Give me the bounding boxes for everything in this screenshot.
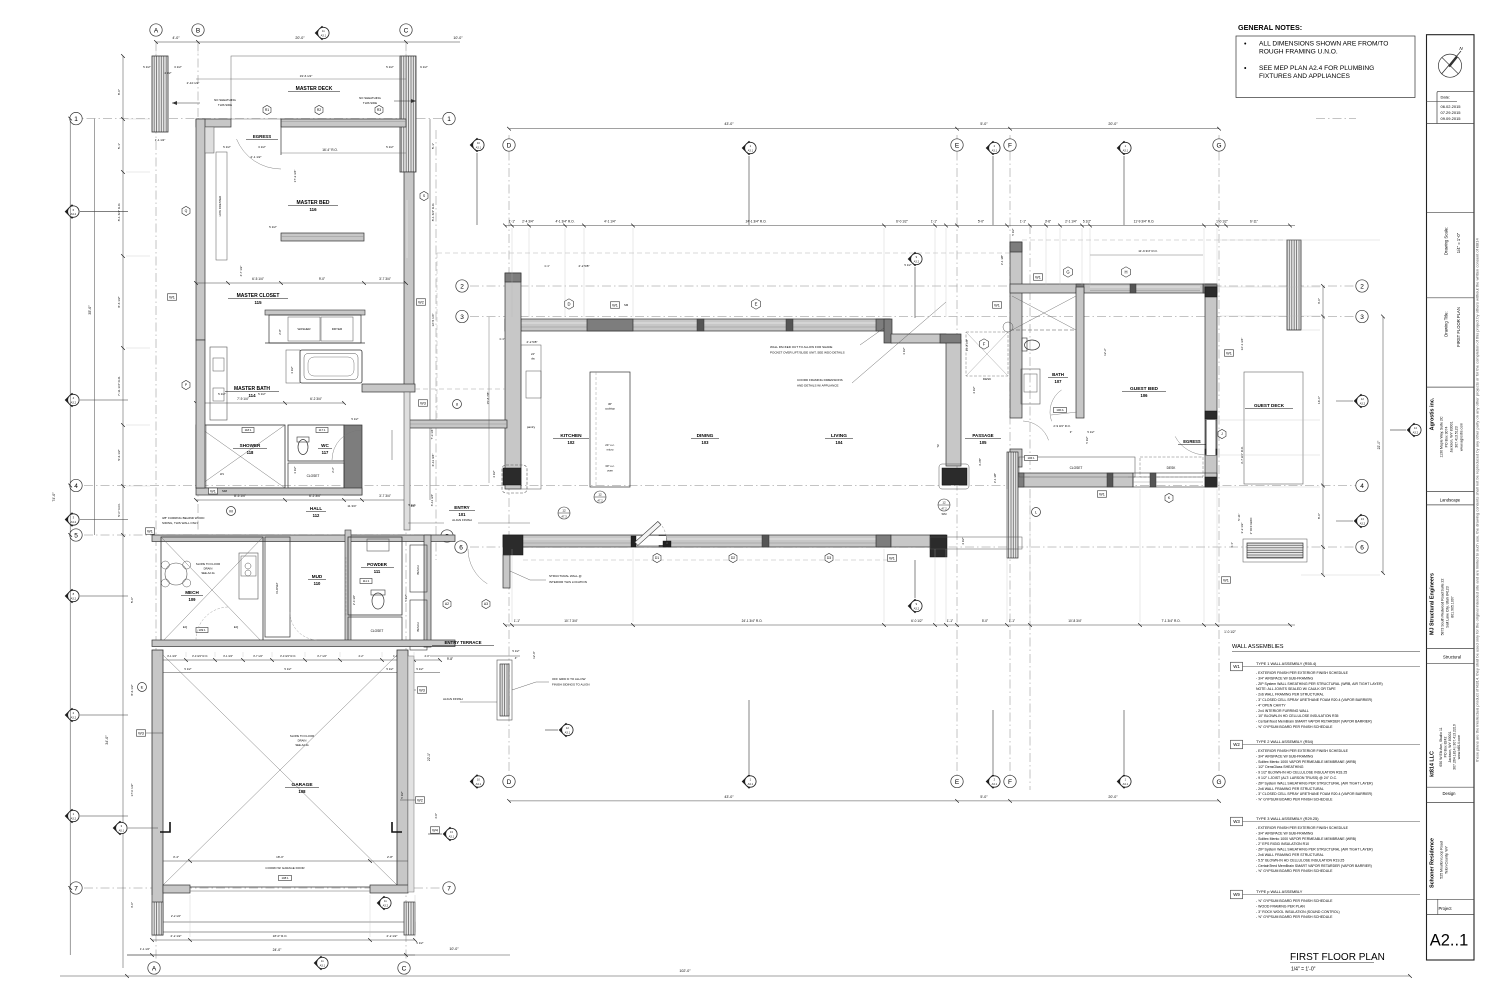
svg-text:5'-11": 5'-11" xyxy=(1237,513,1241,520)
svg-text:A3.1: A3.1 xyxy=(476,146,482,150)
svg-text:3'-4": 3'-4" xyxy=(173,855,179,859)
svg-text:07.29.2015: 07.29.2015 xyxy=(1441,110,1462,115)
svg-text:A: A xyxy=(154,27,159,34)
svg-text:SIDING, THIS WALL ONLY: SIDING, THIS WALL ONLY xyxy=(162,521,198,525)
svg-text:5: 5 xyxy=(74,532,78,539)
svg-text:Jackson, WY 83001: Jackson, WY 83001 xyxy=(1450,421,1454,452)
svg-text:A3.1: A3.1 xyxy=(565,731,571,735)
svg-text:118:1: 118:1 xyxy=(245,428,252,432)
svg-text:13: 13 xyxy=(1361,517,1364,521)
svg-text:12'-1 3/4": 12'-1 3/4" xyxy=(1240,338,1244,351)
svg-text:1: 1 xyxy=(74,116,78,123)
svg-text:6: 6 xyxy=(1360,544,1364,551)
svg-text:3'-2 1/2": 3'-2 1/2" xyxy=(1240,523,1244,534)
svg-text:5873 South Redwood Road Suite: 5873 South Redwood Road Suite 22 xyxy=(1441,579,1445,636)
svg-text:Project: Project xyxy=(1438,906,1452,911)
svg-text:A7.2: A7.2 xyxy=(597,499,603,503)
svg-text:18'-0" R.O.: 18'-0" R.O. xyxy=(273,934,288,938)
svg-text:A3.1: A3.1 xyxy=(748,149,754,153)
svg-text:cooktop: cooktop xyxy=(605,407,615,411)
svg-text:5 1/2": 5 1/2" xyxy=(416,941,423,945)
svg-text:GENERAL NOTES:: GENERAL NOTES: xyxy=(1238,23,1302,32)
svg-text:FIRST FLOOR PLAN: FIRST FLOOR PLAN xyxy=(1456,307,1461,347)
svg-text:2'-2 1/2": 2'-2 1/2" xyxy=(171,914,181,918)
svg-text:4'-0": 4'-0" xyxy=(172,36,180,40)
svg-text:3: 3 xyxy=(460,314,464,321)
svg-text:3'-7 1/2": 3'-7 1/2" xyxy=(317,654,327,658)
svg-text:9 1/2": 9 1/2" xyxy=(420,65,428,69)
svg-text:Drawing Title:: Drawing Title: xyxy=(1443,311,1448,336)
svg-text:3 1/2": 3 1/2" xyxy=(290,366,294,373)
svg-text:106: 106 xyxy=(1141,393,1149,398)
svg-text:Teton County, WY: Teton County, WY xyxy=(1445,845,1449,874)
svg-text:43'-0": 43'-0" xyxy=(724,122,734,126)
svg-text:GUEST BED: GUEST BED xyxy=(1130,386,1159,392)
svg-text:INTERIOR THIS LOCATION: INTERIOR THIS LOCATION xyxy=(549,580,587,584)
svg-text:R3: R3 xyxy=(377,108,381,112)
svg-text:R2: R2 xyxy=(317,108,321,112)
svg-text:5'-1": 5'-1" xyxy=(431,143,435,149)
svg-text:- 3/4" AIRSPACE W/ SUB-FRAMING: - 3/4" AIRSPACE W/ SUB-FRAMING xyxy=(1256,831,1313,835)
svg-text:3: 3 xyxy=(1360,314,1364,321)
svg-text:G: G xyxy=(1216,142,1221,149)
svg-text:W2: W2 xyxy=(1233,742,1240,747)
svg-text:8'-0": 8'-0" xyxy=(117,89,121,95)
svg-text:5'-1": 5'-1" xyxy=(117,143,121,149)
svg-text:DINING: DINING xyxy=(697,433,714,439)
svg-text:1/4" = 1'-0": 1/4" = 1'-0" xyxy=(1291,967,1316,973)
svg-text:106:1: 106:1 xyxy=(1028,456,1035,460)
svg-text:W1: W1 xyxy=(889,556,895,560)
svg-text:1'-1": 1'-1" xyxy=(947,619,953,623)
svg-text:307.413.5123: 307.413.5123 xyxy=(1455,426,1459,447)
svg-text:3'-0": 3'-0" xyxy=(1317,298,1321,304)
svg-text:5 1/2": 5 1/2" xyxy=(218,392,226,396)
svg-text:W3: W3 xyxy=(138,731,144,735)
svg-text:30" u.c.: 30" u.c. xyxy=(605,464,615,468)
svg-text:PASSAGE: PASSAGE xyxy=(972,433,993,438)
svg-text:2'-2": 2'-2" xyxy=(331,467,335,473)
svg-text:J: J xyxy=(1221,432,1223,436)
svg-text:A3.1: A3.1 xyxy=(320,964,326,968)
svg-text:WASHER: WASHER xyxy=(297,327,311,331)
svg-text:15'-8 7/8": 15'-8 7/8" xyxy=(965,339,969,351)
svg-text:W1: W1 xyxy=(147,529,153,533)
svg-text:WALL PACKED OUT TO ALLOW FOR S: WALL PACKED OUT TO ALLOW FOR SHADE xyxy=(770,345,832,349)
svg-text:17'-0 1/2": 17'-0 1/2" xyxy=(130,783,134,796)
svg-text:106:A: 106:A xyxy=(1056,408,1063,412)
svg-text:CLOSET: CLOSET xyxy=(371,629,384,633)
svg-text:A3.1: A3.1 xyxy=(321,34,327,38)
svg-text:Structural: Structural xyxy=(1443,655,1461,660)
svg-text:2'-8": 2'-8" xyxy=(387,855,393,859)
svg-text:12'-5 1/4": 12'-5 1/4" xyxy=(431,313,435,326)
svg-text:W1: W1 xyxy=(994,303,1000,307)
svg-text:H: H xyxy=(1124,270,1127,275)
svg-text:8: 8 xyxy=(456,402,458,406)
svg-text:5 1/2": 5 1/2" xyxy=(416,667,423,671)
svg-text:12'-0": 12'-0" xyxy=(532,651,536,659)
svg-text:oven: oven xyxy=(607,469,614,473)
svg-text:F: F xyxy=(1008,779,1012,786)
svg-text:ENTRY TERRACE: ENTRY TERRACE xyxy=(444,640,481,645)
svg-text:3": 3" xyxy=(1070,430,1072,434)
svg-text:8'-6 1/2": 8'-6 1/2" xyxy=(130,684,134,695)
svg-text:- 9 1/2" I-JOIST (ALT: LARSON: - 9 1/2" I-JOIST (ALT: LARSON TRUSS) @ 2… xyxy=(1256,776,1337,780)
svg-text:6'-11": 6'-11" xyxy=(1250,220,1258,224)
svg-text:10: 10 xyxy=(477,778,480,782)
svg-text:D: D xyxy=(507,779,512,786)
svg-text:12: 12 xyxy=(1361,397,1364,401)
svg-text:- 3/4" AIRSPACE W/ SUB-FRAMING: - 3/4" AIRSPACE W/ SUB-FRAMING xyxy=(1256,676,1313,680)
svg-text:3'-7 3/4": 3'-7 3/4" xyxy=(379,277,391,281)
svg-text:102: 102 xyxy=(568,440,576,445)
svg-text:A7.3: A7.3 xyxy=(561,515,567,519)
svg-text:MASTER BED: MASTER BED xyxy=(296,200,329,206)
svg-text:W9: W9 xyxy=(1233,892,1240,897)
svg-text:MJ Structural Engineers: MJ Structural Engineers xyxy=(1430,573,1436,635)
svg-text:115: 115 xyxy=(254,300,262,305)
svg-text:Salt Lake City, Utah 84123: Salt Lake City, Utah 84123 xyxy=(1446,586,1450,627)
svg-text:D2: D2 xyxy=(731,556,735,560)
svg-text:5 1/2": 5 1/2" xyxy=(386,145,394,149)
svg-text:8'-3 1/2": 8'-3 1/2" xyxy=(117,296,121,307)
svg-text:- 3" CLOSED CELL SPRAY URETHAN: - 3" CLOSED CELL SPRAY URETHANE FOAM R20… xyxy=(1256,792,1372,796)
svg-text:LIVING: LIVING xyxy=(831,433,847,439)
svg-text:7'-9 1/4": 7'-9 1/4" xyxy=(237,397,249,401)
svg-text:W1: W1 xyxy=(1223,578,1229,582)
svg-text:3'-7 3/4": 3'-7 3/4" xyxy=(379,494,391,498)
svg-text:3'-7 1/2": 3'-7 1/2" xyxy=(253,654,263,658)
svg-text:WALL ASSEMBLIES: WALL ASSEMBLIES xyxy=(1232,644,1284,650)
svg-text:PO Box 8242: PO Box 8242 xyxy=(1444,737,1448,758)
svg-text:A3.2: A3.2 xyxy=(914,607,920,611)
svg-text:6'-0 1/2": 6'-0 1/2" xyxy=(911,619,923,623)
svg-text:STRUCTURAL WALL @: STRUCTURAL WALL @ xyxy=(549,574,582,578)
svg-text:650 W Elk Ave, Studio 11: 650 W Elk Ave, Studio 11 xyxy=(1439,727,1443,766)
svg-text:Landscape: Landscape xyxy=(1440,498,1461,503)
svg-text:Date:: Date: xyxy=(1441,94,1451,99)
svg-text:3'-1 1/8": 3'-1 1/8" xyxy=(993,473,997,483)
svg-text:2'-2 5/8": 2'-2 5/8" xyxy=(527,340,538,344)
svg-text:3'-1 1/8": 3'-1 1/8" xyxy=(1000,255,1004,265)
svg-text:1/4" = 1'-0": 1/4" = 1'-0" xyxy=(1456,232,1461,253)
svg-text:dw: dw xyxy=(531,357,534,361)
svg-text:102'-0": 102'-0" xyxy=(679,969,691,973)
svg-text:06.02.2015: 06.02.2015 xyxy=(1441,104,1462,109)
svg-text:W1: W1 xyxy=(1099,492,1105,496)
svg-text:COORD FRAMING DIMENSIONS: COORD FRAMING DIMENSIONS xyxy=(797,378,843,382)
svg-text:www.agrostis.com: www.agrostis.com xyxy=(1460,423,1464,451)
svg-text:5 1/2": 5 1/2" xyxy=(351,417,358,421)
svg-text:E: E xyxy=(955,779,960,786)
svg-text:A3.1: A3.1 xyxy=(992,782,998,786)
svg-text:W3: W3 xyxy=(1233,819,1240,824)
svg-text:6'-2 3/4": 6'-2 3/4" xyxy=(310,397,322,401)
svg-text:POCKET OVER LIFT/SLIDE UNIT, S: POCKET OVER LIFT/SLIDE UNIT, SEE WDO DET… xyxy=(770,351,845,355)
svg-text:C: C xyxy=(404,27,409,34)
svg-text:- 3" ROCK WOOL INSULATION (SOU: - 3" ROCK WOOL INSULATION (SOUND CONTROL… xyxy=(1256,910,1340,914)
svg-text:M: M xyxy=(229,508,232,513)
svg-text:- 2x6 WALL FRAMING PER STRUCTU: - 2x6 WALL FRAMING PER STRUCTURAL xyxy=(1256,787,1324,791)
svg-text:5 1/2": 5 1/2" xyxy=(904,263,911,267)
svg-text:CLOSET: CLOSET xyxy=(1070,466,1083,470)
svg-text:1'-1": 1'-1" xyxy=(499,337,505,341)
svg-text:1'-1": 1'-1" xyxy=(544,264,550,268)
svg-text:6'-11 3/4": 6'-11 3/4" xyxy=(430,494,434,506)
svg-text:111: 111 xyxy=(374,569,381,574)
svg-text:- ZIP System WALL SHEATHING PE: - ZIP System WALL SHEATHING PER STRUCTUR… xyxy=(1256,682,1383,686)
svg-text:CLOSET: CLOSET xyxy=(275,582,279,593)
svg-text:2'-1 1/2": 2'-1 1/2" xyxy=(251,155,262,159)
svg-text:ALL DIMENSIONS SHOWN ARE FROM/: ALL DIMENSIONS SHOWN ARE FROM/TO xyxy=(1259,41,1388,48)
svg-text:SEE A2.0s: SEE A2.0s xyxy=(201,571,215,575)
svg-text:GARAGE: GARAGE xyxy=(291,782,313,788)
svg-text:A2..1: A2..1 xyxy=(1430,932,1469,950)
svg-text:15'-8 7/8": 15'-8 7/8" xyxy=(486,392,490,405)
svg-text:- ⅝" GYPSUM BOARD PER FINISH S: - ⅝" GYPSUM BOARD PER FINISH SCHEDULE xyxy=(1256,899,1333,903)
svg-text:- ZIP System WALL SHEATHING PE: - ZIP System WALL SHEATHING PER STRUCTUR… xyxy=(1256,781,1373,785)
svg-text:4'-0": 4'-0" xyxy=(424,654,429,658)
svg-text:- EXTERIOR FINISH PER EXTERIOR: - EXTERIOR FINISH PER EXTERIOR FINISH SC… xyxy=(1256,826,1349,830)
svg-text:2: 2 xyxy=(1360,283,1364,290)
svg-text:BENCH: BENCH xyxy=(416,565,420,574)
svg-text:109:1: 109:1 xyxy=(199,628,206,632)
svg-text:W1: W1 xyxy=(220,472,224,476)
svg-text:WC: WC xyxy=(321,443,329,448)
svg-text:A3.2: A3.2 xyxy=(1360,402,1366,406)
svg-text:4'-0": 4'-0" xyxy=(434,813,438,819)
svg-text:A3.2: A3.2 xyxy=(71,716,77,720)
svg-text:117: 117 xyxy=(322,450,329,455)
svg-text:6'-0 1/2": 6'-0 1/2" xyxy=(896,220,908,224)
svg-text:4 1/2": 4 1/2" xyxy=(164,71,171,75)
svg-text:1'-1": 1'-1" xyxy=(514,619,520,623)
svg-text:5'-0": 5'-0" xyxy=(978,220,984,224)
svg-text:7'-11 1/4" R.O.: 7'-11 1/4" R.O. xyxy=(117,376,121,396)
svg-text:801.905.1097: 801.905.1097 xyxy=(1451,596,1455,617)
svg-text:35'-0": 35'-0" xyxy=(88,305,92,315)
svg-text:7'-3 1/4": 7'-3 1/4" xyxy=(430,429,434,440)
svg-text:TYPE 3 WALL ASSEMBLY (R29.25): TYPE 3 WALL ASSEMBLY (R29.25) xyxy=(1256,816,1319,821)
svg-text:EQ: EQ xyxy=(234,625,239,629)
svg-text:E: E xyxy=(141,684,144,689)
svg-text:SEE MEP PLAN A2.4 FOR PLUMBING: SEE MEP PLAN A2.4 FOR PLUMBING xyxy=(1259,65,1374,72)
svg-text:24": 24" xyxy=(531,352,535,356)
svg-text:11'-9 3/4" R.O.: 11'-9 3/4" R.O. xyxy=(1138,249,1158,253)
svg-text:1'-1 1/2": 1'-1 1/2" xyxy=(140,947,150,951)
svg-text:- 3/4" AIRSPACE W/ SUB-FRAMING: - 3/4" AIRSPACE W/ SUB-FRAMING xyxy=(1256,754,1313,758)
svg-text:A3.2: A3.2 xyxy=(383,904,389,908)
svg-text:A3.1: A3.1 xyxy=(1123,149,1129,153)
svg-text:1: 1 xyxy=(447,116,451,123)
svg-text:A: A xyxy=(152,965,157,972)
svg-text:09.09.2015: 09.09.2015 xyxy=(1441,116,1462,121)
svg-text:EGRESS: EGRESS xyxy=(253,134,271,139)
svg-text:DESK: DESK xyxy=(1167,466,1177,470)
svg-text:7: 7 xyxy=(74,885,78,892)
svg-text:7'-1 3/4" R.O.: 7'-1 3/4" R.O. xyxy=(1161,619,1180,623)
svg-text:6'-5 1/4": 6'-5 1/4" xyxy=(252,277,264,281)
svg-text:5 1/2": 5 1/2" xyxy=(1083,220,1091,224)
svg-text:118: 118 xyxy=(247,450,254,455)
svg-text:5'-0": 5'-0" xyxy=(980,795,988,799)
svg-text:BENCH: BENCH xyxy=(416,622,420,631)
svg-text:2'-2 1/2": 2'-2 1/2" xyxy=(387,934,398,938)
svg-text:5 1/2": 5 1/2" xyxy=(269,225,277,229)
svg-text:5 1/2": 5 1/2" xyxy=(1085,436,1089,443)
svg-text:A3.1: A3.1 xyxy=(476,782,482,786)
svg-text:SHOWER: SHOWER xyxy=(240,443,261,448)
svg-text:24" u.c.: 24" u.c. xyxy=(605,443,615,447)
svg-text:4": 4" xyxy=(515,656,518,660)
svg-text:1'-1 1/2": 1'-1 1/2" xyxy=(155,138,166,142)
svg-text:3'-3 3/4" R.O.: 3'-3 3/4" R.O. xyxy=(192,654,208,658)
svg-text:W3: W3 xyxy=(419,688,425,692)
svg-text:5'-0": 5'-0" xyxy=(130,597,134,603)
svg-text:112: 112 xyxy=(313,513,320,518)
svg-text:5 1/2": 5 1/2" xyxy=(408,503,415,507)
svg-text:W1: W1 xyxy=(1233,664,1240,669)
svg-text:10'-0": 10'-0" xyxy=(449,947,459,951)
svg-text:A3.2: A3.2 xyxy=(1360,522,1366,526)
svg-text:5 1/2": 5 1/2" xyxy=(284,667,291,671)
svg-text:DRAIN: DRAIN xyxy=(204,567,213,571)
svg-text:D: D xyxy=(507,142,512,149)
svg-text:- 2x6 WALL FRAMING PER STRUCTU: - 2x6 WALL FRAMING PER STRUCTURAL xyxy=(1256,853,1324,857)
svg-text:A3.2: A3.2 xyxy=(71,401,77,405)
svg-text:D1: D1 xyxy=(655,556,659,560)
svg-text:2'-2 1/2": 2'-2 1/2" xyxy=(171,934,182,938)
svg-text:11: 11 xyxy=(321,959,324,963)
svg-text:3'-1 3/4": 3'-1 3/4" xyxy=(167,654,177,658)
svg-text:- EXTERIOR FINISH PER EXTERIOR: - EXTERIOR FINISH PER EXTERIOR FINISH SC… xyxy=(1256,671,1349,675)
svg-text:A3.2: A3.2 xyxy=(1413,431,1419,435)
svg-text:CLOSET: CLOSET xyxy=(307,474,320,478)
svg-text:- ⅝" GYPSUM BOARD PER FINISH S: - ⅝" GYPSUM BOARD PER FINISH SCHEDULE xyxy=(1256,915,1333,919)
svg-text:E: E xyxy=(955,142,960,149)
svg-text:307.264.1814 | 307.413.2219: 307.264.1814 | 307.413.2219 xyxy=(1453,724,1457,770)
svg-text:- 4" OPEN CAVITY: - 4" OPEN CAVITY xyxy=(1256,703,1286,707)
svg-text:FINISH SIDINGS TO ALIGN: FINISH SIDINGS TO ALIGN xyxy=(552,683,590,687)
svg-text:2'-10 1/2": 2'-10 1/2" xyxy=(187,81,200,85)
svg-text:ENTRY: ENTRY xyxy=(454,505,469,510)
svg-text:A7.2: A7.2 xyxy=(941,507,947,511)
svg-text:SM: SM xyxy=(624,303,629,307)
svg-text:THIS SIDE: THIS SIDE xyxy=(218,103,232,107)
svg-text:5 1/2": 5 1/2" xyxy=(1011,228,1015,235)
svg-text:LOW DRESSER: LOW DRESSER xyxy=(218,196,222,217)
svg-text:5'-0": 5'-0" xyxy=(982,619,988,623)
svg-text:24'-0": 24'-0" xyxy=(273,948,282,952)
svg-text:2'-1 1/4": 2'-1 1/4" xyxy=(1065,220,1077,224)
svg-text:- Solitex Mento 1000 VAPOR PE: - Solitex Mento 1000 VAPOR PERMEABLE MEM… xyxy=(1256,760,1356,764)
svg-text:SIM: SIM xyxy=(222,489,228,493)
svg-text:3 1/2": 3 1/2" xyxy=(902,347,906,354)
svg-text:4: 4 xyxy=(74,483,78,490)
svg-text:4 1/2": 4 1/2" xyxy=(961,537,965,544)
svg-text:7: 7 xyxy=(447,885,451,892)
svg-text:9'-8": 9'-8" xyxy=(447,657,453,661)
svg-text:11: 11 xyxy=(384,899,387,903)
svg-text:13: 13 xyxy=(450,830,453,834)
svg-text:THIS SIDE: THIS SIDE xyxy=(363,101,377,105)
svg-text:MECH: MECH xyxy=(185,590,199,595)
svg-text:6'-2 3/4": 6'-2 3/4" xyxy=(309,494,321,498)
svg-text:A3.1: A3.1 xyxy=(748,782,754,786)
svg-text:12'-2": 12'-2" xyxy=(1103,348,1107,356)
svg-text:20'-0": 20'-0" xyxy=(1108,795,1118,799)
svg-text:24'-1 3/4" R.O.: 24'-1 3/4" R.O. xyxy=(746,220,767,224)
svg-text:8'-1 3/4" R.O.: 8'-1 3/4" R.O. xyxy=(431,203,435,222)
svg-text:DESK: DESK xyxy=(983,377,991,381)
svg-text:1'-1": 1'-1" xyxy=(1009,619,1015,623)
svg-text:10'-7 3/4": 10'-7 3/4" xyxy=(564,619,577,623)
svg-text:3 1/2": 3 1/2" xyxy=(293,466,297,473)
svg-text:Agrostis inc.: Agrostis inc. xyxy=(1430,397,1436,430)
svg-text:SIM: SIM xyxy=(942,512,948,516)
svg-text:2: 2 xyxy=(460,283,464,290)
svg-text:- 2x4 INTERIOR FURRING WALL: - 2x4 INTERIOR FURRING WALL xyxy=(1256,709,1309,713)
svg-text:3/8" FURRING BEHIND WOOD: 3/8" FURRING BEHIND WOOD xyxy=(162,516,205,520)
svg-text:TV: TV xyxy=(936,444,940,448)
svg-text:117:1: 117:1 xyxy=(319,428,326,432)
svg-text:2'-4 3/4": 2'-4 3/4" xyxy=(522,220,534,224)
svg-text:4: 4 xyxy=(1360,483,1364,490)
svg-text:micro: micro xyxy=(607,448,614,452)
svg-text:MUD: MUD xyxy=(312,574,323,579)
svg-text:DRAIN: DRAIN xyxy=(298,739,307,743)
svg-text:5 1/2": 5 1/2" xyxy=(184,667,191,671)
svg-text:E: E xyxy=(755,302,758,307)
svg-text:17'-2 3/4": 17'-2 3/4" xyxy=(293,170,297,183)
svg-text:3 1/2": 3 1/2" xyxy=(174,65,182,69)
svg-text:525 Moulton Loop Road: 525 Moulton Loop Road xyxy=(1440,841,1444,878)
svg-text:12: 12 xyxy=(566,726,569,730)
svg-text:D: D xyxy=(567,302,570,307)
svg-text:- WOOD FRAMING PER PLAN: - WOOD FRAMING PER PLAN xyxy=(1256,904,1305,908)
svg-text:G: G xyxy=(1216,779,1221,786)
svg-text:- EXTERIOR FINISH PER EXTERIOR: - EXTERIOR FINISH PER EXTERIOR FINISH SC… xyxy=(1256,749,1349,753)
svg-text:D3: D3 xyxy=(827,556,831,560)
svg-text:1'-1": 1'-1" xyxy=(1020,220,1026,224)
svg-text:- 10" BLOWN-IN HD CELLULOSE IN: - 10" BLOWN-IN HD CELLULOSE INSULATION R… xyxy=(1256,714,1339,718)
svg-text:W2: W2 xyxy=(417,798,423,802)
svg-text:PO Box 3074: PO Box 3074 xyxy=(1445,427,1449,448)
svg-text:- 1/2" DensGlass SHEATHING: - 1/2" DensGlass SHEATHING xyxy=(1256,765,1304,769)
svg-text:5'-0" R.O.: 5'-0" R.O. xyxy=(117,503,121,517)
svg-text:103: 103 xyxy=(702,440,710,445)
svg-text:A3.2: A3.2 xyxy=(71,597,77,601)
svg-text:12: 12 xyxy=(598,493,602,497)
svg-text:14: 14 xyxy=(1414,426,1417,430)
svg-text:5 1/2": 5 1/2" xyxy=(1087,430,1094,434)
svg-text:3'-6": 3'-6" xyxy=(1045,220,1051,224)
svg-text:5 1/2": 5 1/2" xyxy=(404,594,408,601)
svg-text:101: 101 xyxy=(459,512,467,517)
svg-text:1'-0 1/2": 1'-0 1/2" xyxy=(1224,630,1236,634)
svg-text:COORD W/ GARAGE DOOR: COORD W/ GARAGE DOOR xyxy=(265,866,305,870)
svg-text:4'-7 1/2": 4'-7 1/2" xyxy=(239,266,243,277)
svg-text:43'-0": 43'-0" xyxy=(724,795,734,799)
svg-text:A3: A3 xyxy=(484,602,488,606)
svg-text:W3: W3 xyxy=(420,401,426,405)
svg-text:108:1: 108:1 xyxy=(282,876,289,880)
svg-text:DRYER: DRYER xyxy=(332,327,343,331)
svg-text:Q: Q xyxy=(185,209,188,213)
svg-text:5'-6 1/2": 5'-6 1/2" xyxy=(117,449,121,460)
svg-text:8'-1 3/4" R.O.: 8'-1 3/4" R.O. xyxy=(117,203,121,222)
